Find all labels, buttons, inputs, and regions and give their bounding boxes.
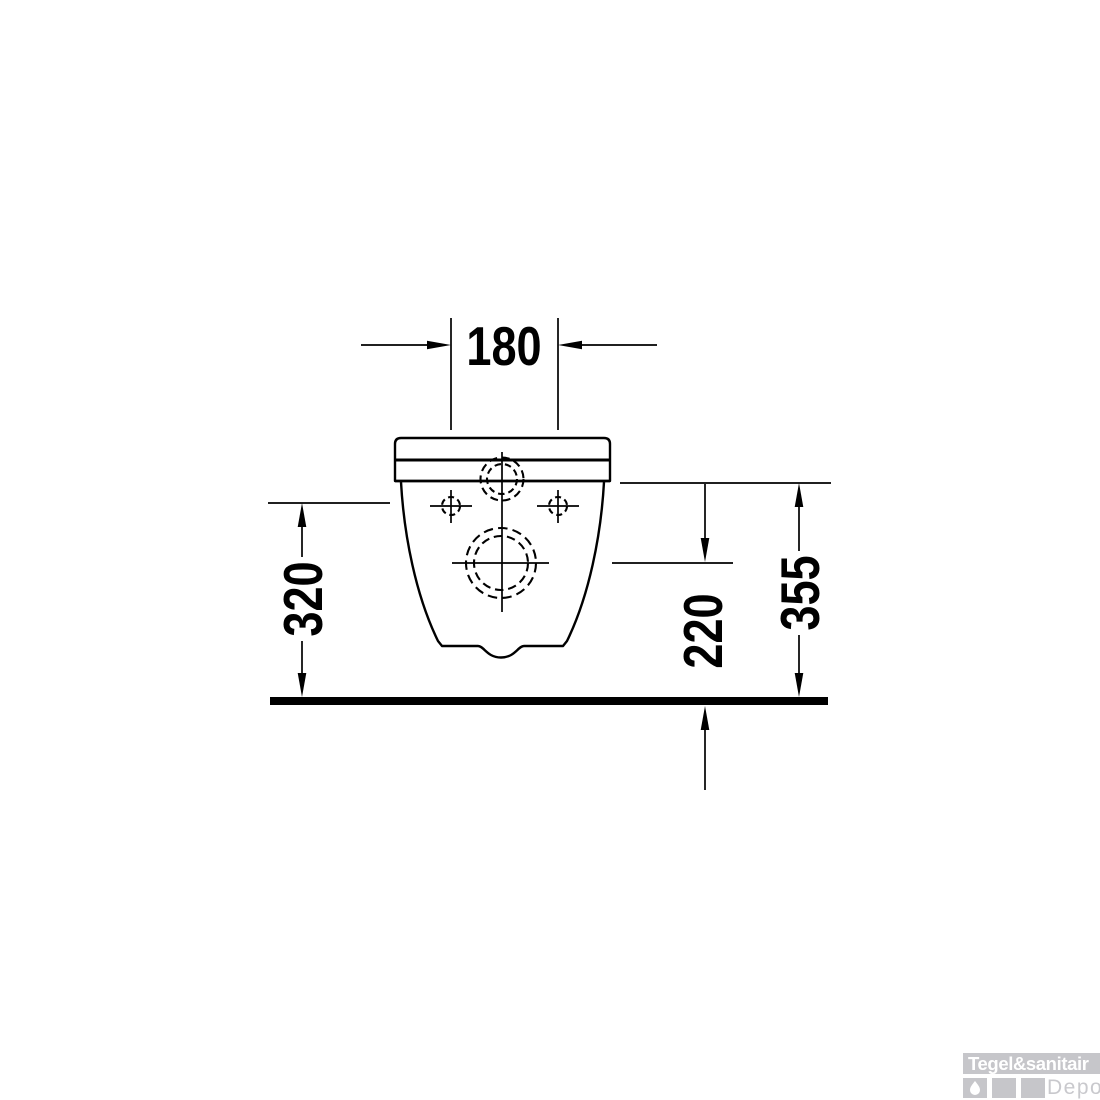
arrowhead-down-icon — [701, 538, 710, 562]
watermark-title: Tegel&sanitair — [968, 1053, 1089, 1074]
arrowhead-up-icon — [795, 483, 804, 507]
dimension-label-355: 355 — [769, 555, 831, 630]
dimension-label-220: 220 — [672, 593, 734, 668]
watermark-band: Tegel&sanitair — [963, 1053, 1100, 1074]
dimension-label-320: 320 — [272, 561, 334, 636]
floor-line — [270, 697, 828, 705]
dimension-220: 220 — [672, 484, 734, 790]
arrowhead-left-icon — [558, 341, 582, 350]
technical-drawing-page: 180 320 220 355 — [0, 0, 1100, 1100]
toilet-dimension-diagram: 180 320 220 355 — [0, 0, 1100, 1100]
arrowhead-right-icon — [427, 341, 451, 350]
dimension-label-180: 180 — [466, 315, 541, 377]
water-drop-icon — [963, 1078, 987, 1098]
watermark-square-drop — [963, 1078, 987, 1098]
watermark-subtitle: Depot — [1047, 1076, 1100, 1100]
dimension-180: 180 — [361, 315, 657, 430]
dimension-320: 320 — [268, 503, 390, 697]
arrowhead-down-icon — [795, 673, 804, 697]
watermark-square-2 — [992, 1078, 1016, 1098]
watermark-square-3 — [1021, 1078, 1045, 1098]
arrowhead-up-icon — [701, 706, 710, 730]
arrowhead-down-icon — [298, 673, 307, 697]
dimension-355: 355 — [769, 483, 831, 697]
arrowhead-up-icon — [298, 503, 307, 527]
